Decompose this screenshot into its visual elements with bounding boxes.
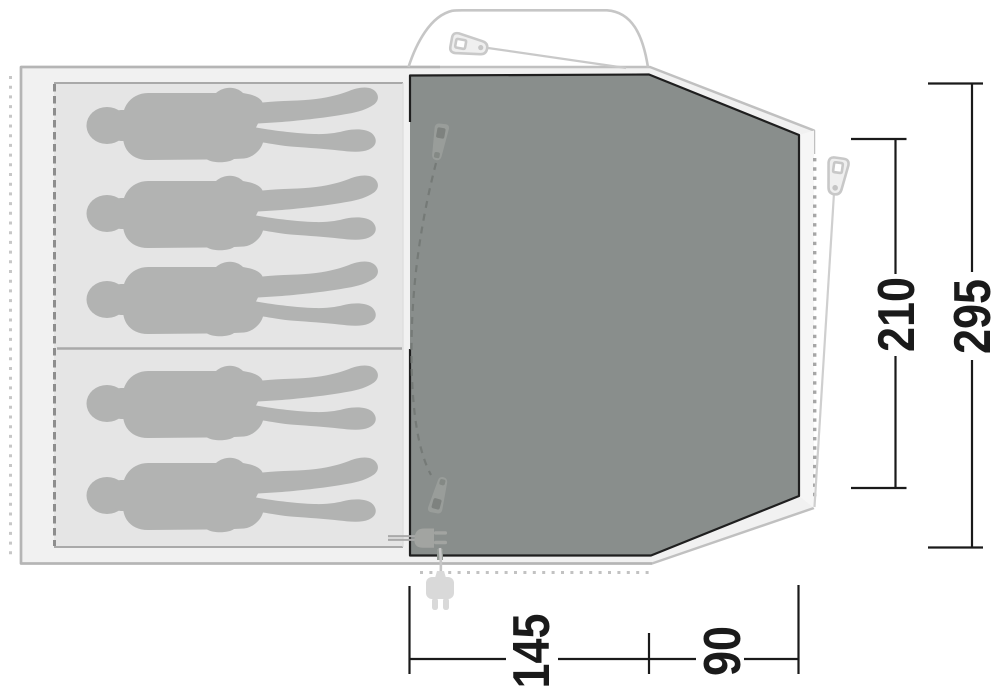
svg-text:90: 90 (694, 626, 752, 676)
svg-text:295: 295 (944, 279, 1002, 354)
svg-text:145: 145 (503, 614, 561, 689)
svg-text:210: 210 (868, 277, 926, 352)
